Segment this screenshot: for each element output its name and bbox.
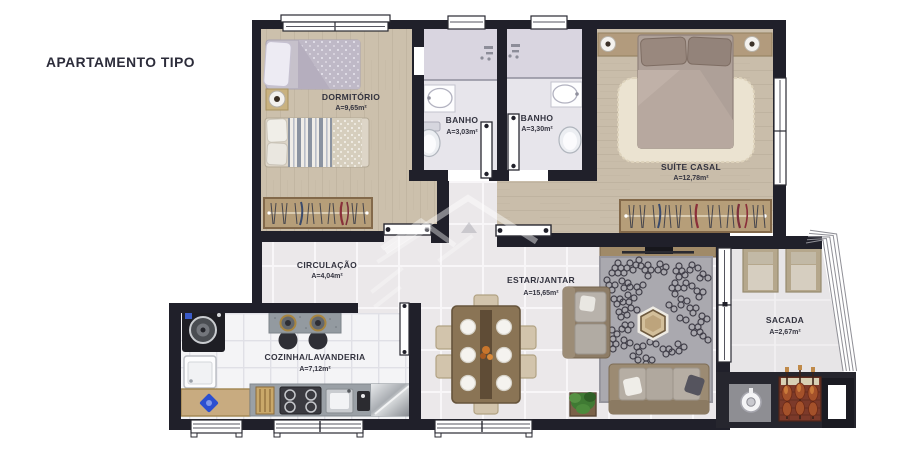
svg-text:A=2,67m²: A=2,67m² — [769, 329, 801, 336]
svg-text:SACADA: SACADA — [766, 315, 804, 325]
svg-text:A=7,12m²: A=7,12m² — [299, 366, 331, 373]
svg-text:BANHO: BANHO — [521, 113, 554, 123]
svg-text:ESTAR/JANTAR: ESTAR/JANTAR — [507, 275, 575, 285]
svg-text:COZINHA/LAVANDERIA: COZINHA/LAVANDERIA — [265, 352, 366, 362]
svg-text:A=4,04m²: A=4,04m² — [311, 273, 343, 280]
svg-text:APARTAMENTO TIPO: APARTAMENTO TIPO — [46, 55, 195, 70]
svg-text:CIRCULAÇÃO: CIRCULAÇÃO — [297, 260, 357, 270]
svg-text:A=12,78m²: A=12,78m² — [673, 175, 709, 182]
svg-text:DORMITÓRIO: DORMITÓRIO — [322, 91, 380, 102]
svg-text:A=3,03m²: A=3,03m² — [446, 129, 478, 136]
svg-text:BANHO: BANHO — [446, 115, 479, 125]
svg-text:A=3,30m²: A=3,30m² — [521, 126, 553, 133]
svg-text:A=9,65m²: A=9,65m² — [335, 105, 367, 112]
svg-text:SUÍTE CASAL: SUÍTE CASAL — [661, 162, 721, 172]
svg-text:A=15,65m²: A=15,65m² — [523, 290, 559, 297]
